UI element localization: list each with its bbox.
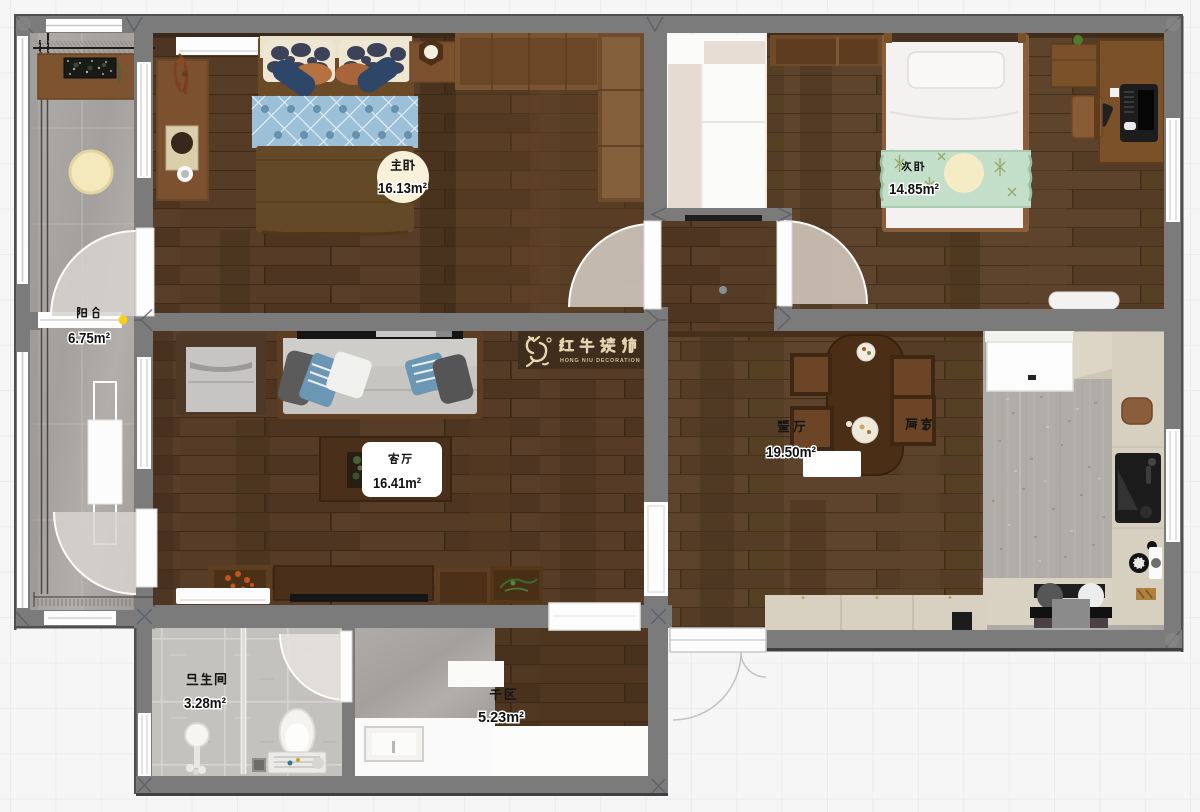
svg-text:14.85m²: 14.85m² <box>889 181 939 198</box>
svg-text:HONG NIU DECORATION: HONG NIU DECORATION <box>560 358 640 364</box>
svg-text:16.13m²: 16.13m² <box>378 180 427 197</box>
svg-text:3.28m²: 3.28m² <box>184 695 226 712</box>
svg-text:16.41m²: 16.41m² <box>373 475 421 492</box>
svg-text:19.50m²: 19.50m² <box>766 444 816 461</box>
svg-text:5.23m²: 5.23m² <box>478 709 524 726</box>
svg-text:6.75m²: 6.75m² <box>68 330 110 347</box>
